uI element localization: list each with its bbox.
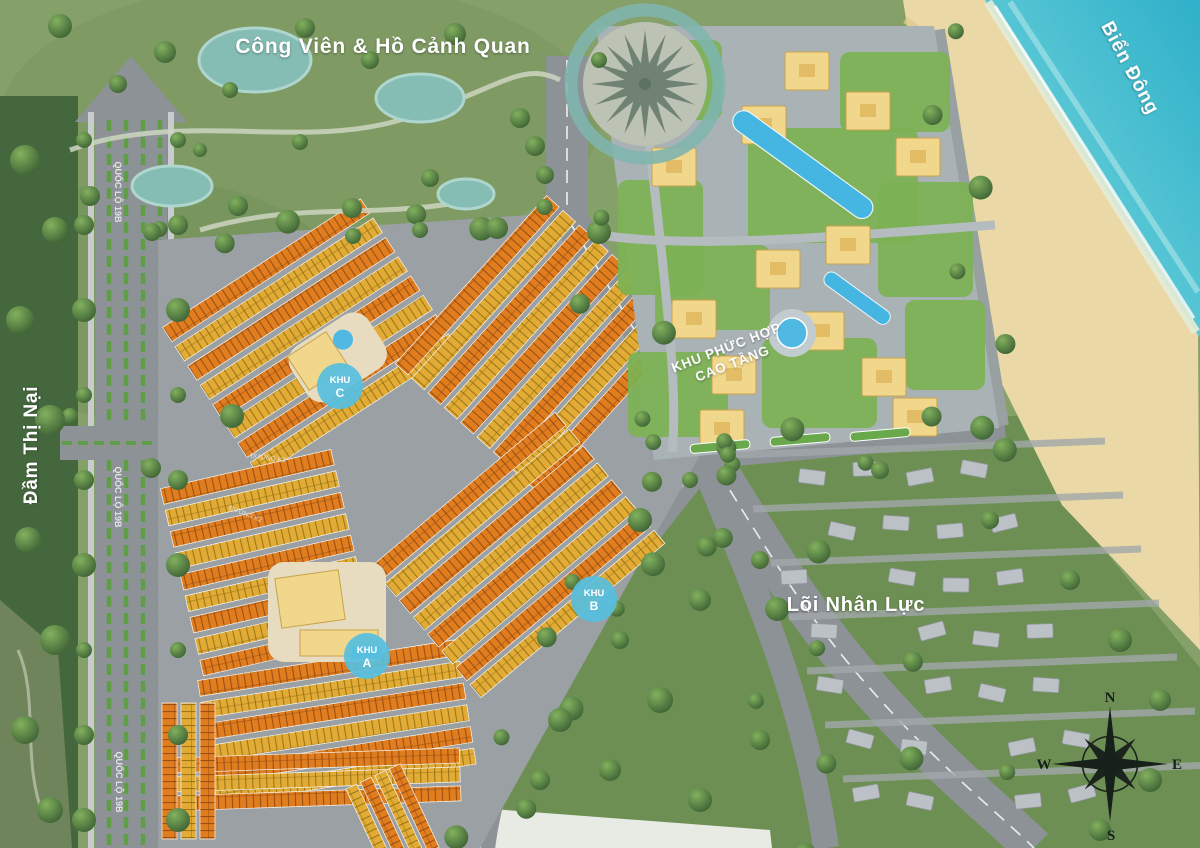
tree — [645, 434, 661, 450]
tree — [599, 759, 621, 781]
tree — [949, 263, 965, 279]
tree — [903, 652, 923, 672]
compass-north: N — [1105, 690, 1116, 706]
svg-text:KHU: KHU — [357, 645, 378, 656]
lake — [376, 74, 464, 122]
tree — [537, 199, 553, 215]
mandala-plaza — [571, 10, 719, 158]
tree — [220, 404, 244, 428]
tree — [899, 747, 923, 771]
master-plan-map: Công Viên & Hồ Cảnh Quan Biển Đông Đầm T… — [0, 0, 1200, 848]
building-core — [686, 312, 702, 325]
tree — [421, 169, 439, 187]
compass-east: E — [1172, 757, 1182, 773]
tree — [342, 198, 362, 218]
tree — [716, 466, 736, 486]
tree — [222, 82, 238, 98]
highway-label: QUỐC LỘ 19B — [113, 161, 124, 223]
lawn — [878, 182, 973, 297]
tree — [751, 551, 769, 569]
tree — [74, 725, 94, 745]
tree — [15, 527, 41, 553]
tree — [42, 217, 68, 243]
tree — [141, 458, 161, 478]
tree — [923, 105, 943, 125]
svg-text:C: C — [336, 386, 345, 400]
tree — [720, 447, 736, 463]
map-canvas: Công Viên & Hồ Cảnh Quan Biển Đông Đầm T… — [0, 0, 1200, 848]
tree — [570, 294, 590, 314]
tree — [647, 687, 673, 713]
tree — [548, 708, 572, 732]
tree — [228, 196, 248, 216]
tree — [486, 217, 508, 239]
tree — [995, 334, 1015, 354]
tree — [166, 808, 190, 832]
tree — [168, 215, 188, 235]
tree — [530, 770, 550, 790]
tree — [689, 589, 711, 611]
tree — [48, 14, 72, 38]
tree — [166, 298, 190, 322]
tree — [516, 799, 536, 819]
tree — [816, 754, 836, 774]
tree — [922, 407, 942, 427]
village-house — [781, 569, 808, 584]
tree — [1060, 570, 1080, 590]
tree — [688, 788, 712, 812]
tree — [412, 222, 428, 238]
zone-marker-khu-c[interactable]: KHU C — [317, 363, 363, 409]
village-house — [943, 578, 969, 592]
lot-row — [200, 703, 215, 839]
village-house — [798, 468, 826, 485]
tree — [652, 321, 676, 345]
tree — [1138, 768, 1162, 792]
lake — [132, 166, 212, 206]
tree — [76, 642, 92, 658]
tree — [166, 553, 190, 577]
tree — [716, 433, 732, 449]
highway-label: QUỐC LỘ 19B — [114, 751, 125, 813]
building-core — [910, 150, 926, 163]
tree — [682, 472, 698, 488]
tree — [494, 729, 510, 745]
tree — [143, 223, 161, 241]
village-house — [972, 630, 1000, 647]
tree — [970, 416, 994, 440]
tree — [809, 640, 825, 656]
lake — [438, 179, 494, 209]
tree — [981, 511, 999, 529]
tree — [510, 108, 530, 128]
tree — [276, 210, 300, 234]
park-label: Công Viên & Hồ Cảnh Quan — [235, 35, 530, 58]
svg-text:B: B — [590, 599, 599, 613]
tree — [871, 461, 889, 479]
tree — [11, 716, 39, 744]
svg-text:KHU: KHU — [584, 588, 605, 599]
building-core — [907, 410, 923, 423]
building-core — [860, 104, 876, 117]
clubhouse — [275, 570, 345, 628]
tree — [37, 797, 63, 823]
village-house — [1014, 793, 1041, 810]
tree — [628, 508, 652, 532]
tree — [807, 540, 831, 564]
tree — [170, 642, 186, 658]
tree — [170, 387, 186, 403]
svg-text:A: A — [363, 656, 372, 670]
workforce-label: Lõi Nhân Lực — [787, 594, 926, 616]
tree — [170, 132, 186, 148]
tree — [345, 228, 361, 244]
tree — [74, 215, 94, 235]
tree — [72, 553, 96, 577]
tree — [591, 52, 607, 68]
tree — [72, 808, 96, 832]
tree — [634, 411, 650, 427]
tree — [406, 204, 426, 224]
tree — [593, 210, 609, 226]
tree — [969, 176, 993, 200]
tree — [993, 438, 1017, 462]
tree — [6, 306, 34, 334]
tree — [72, 298, 96, 322]
tree — [109, 75, 127, 93]
village-house — [1033, 677, 1060, 693]
tree — [292, 134, 308, 150]
tree — [750, 730, 770, 750]
tree — [74, 470, 94, 490]
tree — [642, 472, 662, 492]
building-core — [799, 64, 815, 77]
zone-marker-khu-a[interactable]: KHU A — [344, 633, 390, 679]
tree — [168, 470, 188, 490]
tree — [80, 186, 100, 206]
building-core — [814, 324, 830, 337]
building-core — [876, 370, 892, 383]
tree — [697, 537, 717, 557]
tree — [948, 23, 964, 39]
lagoon-label: Đầm Thị Nại — [21, 386, 42, 505]
tree — [1149, 689, 1171, 711]
svg-text:KHU: KHU — [330, 375, 351, 386]
tree — [193, 143, 207, 157]
building-core — [840, 238, 856, 251]
tree — [536, 166, 554, 184]
tree — [999, 764, 1015, 780]
tree — [1108, 628, 1132, 652]
tree — [40, 625, 70, 655]
village-house — [811, 623, 838, 638]
lawn — [905, 300, 985, 390]
tree — [215, 233, 235, 253]
tree — [780, 417, 804, 441]
highway-label: QUỐC LỘ 19B — [113, 466, 124, 528]
tree — [641, 552, 665, 576]
tree — [154, 41, 176, 63]
tree — [525, 136, 545, 156]
tree — [537, 627, 557, 647]
tree — [76, 132, 92, 148]
tree — [10, 145, 40, 175]
building-core — [714, 422, 730, 435]
tree — [611, 631, 629, 649]
building-core — [666, 160, 682, 173]
compass-south: S — [1107, 828, 1115, 844]
tree — [748, 693, 764, 709]
plaza-center — [639, 78, 651, 90]
zone-marker-khu-b[interactable]: KHU B — [571, 576, 617, 622]
village-house — [1027, 624, 1053, 639]
tree — [168, 725, 188, 745]
building-core — [770, 262, 786, 275]
compass-west: W — [1037, 757, 1052, 773]
tree — [765, 597, 789, 621]
village-house — [883, 515, 910, 531]
village-house — [936, 523, 963, 539]
tree — [76, 387, 92, 403]
